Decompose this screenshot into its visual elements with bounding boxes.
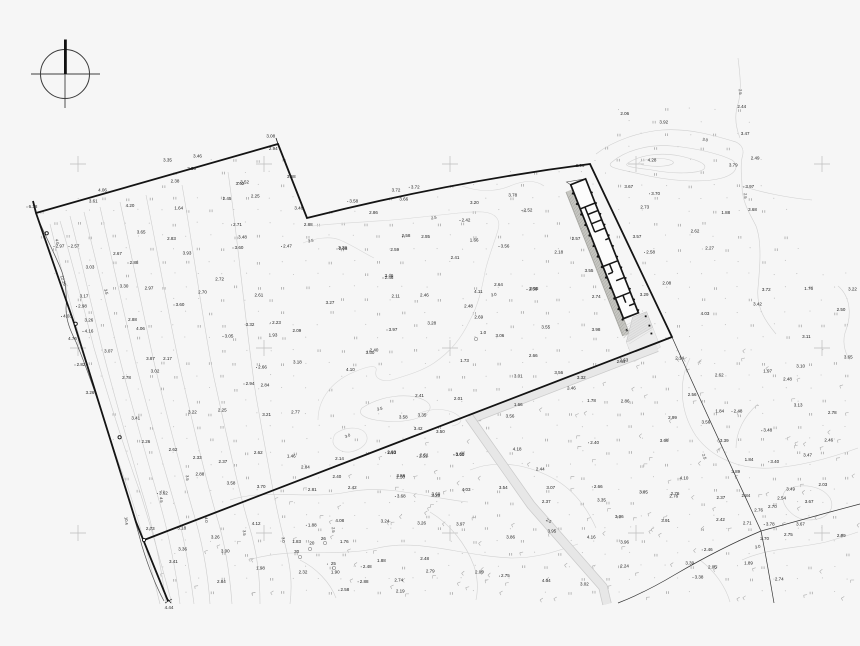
svg-text:3.01: 3.01: [514, 374, 523, 379]
svg-text:3.97: 3.97: [456, 522, 465, 527]
svg-text:2.66: 2.66: [258, 365, 267, 370]
svg-text:2.72: 2.72: [215, 277, 224, 282]
svg-text:2.40: 2.40: [333, 474, 342, 479]
svg-text:2.48: 2.48: [363, 564, 372, 569]
svg-text:2.84: 2.84: [301, 464, 310, 469]
svg-text:2.50: 2.50: [187, 166, 196, 171]
svg-text:2.18: 2.18: [554, 250, 563, 255]
svg-text:3.95: 3.95: [548, 529, 557, 534]
svg-text:3.78: 3.78: [508, 192, 517, 197]
svg-text:1.90: 1.90: [331, 570, 340, 575]
svg-text:3.22: 3.22: [848, 287, 857, 292]
svg-text:4.11: 4.11: [474, 289, 483, 294]
svg-text:2.32: 2.32: [299, 569, 308, 574]
svg-text:2.58: 2.58: [402, 233, 411, 238]
svg-text:2.73: 2.73: [146, 526, 155, 531]
svg-text:2.84: 2.84: [261, 383, 270, 388]
svg-text:2.33: 2.33: [193, 455, 202, 460]
svg-text:2.42: 2.42: [716, 517, 725, 522]
svg-text:2.62: 2.62: [254, 450, 263, 455]
svg-text:3.92: 3.92: [659, 120, 668, 125]
svg-text:2.99: 2.99: [668, 415, 677, 420]
svg-text:2.71: 2.71: [743, 520, 752, 525]
svg-text:3.30: 3.30: [120, 284, 129, 289]
svg-text:3.89: 3.89: [731, 469, 740, 474]
svg-text:2.01: 2.01: [454, 396, 463, 401]
svg-text:3.40: 3.40: [770, 459, 779, 464]
svg-text:1.78: 1.78: [587, 398, 596, 403]
svg-text:2.67: 2.67: [113, 251, 122, 256]
svg-text:2.58: 2.58: [341, 587, 350, 592]
svg-text:3.97: 3.97: [745, 184, 754, 189]
svg-text:3.47: 3.47: [741, 131, 750, 136]
svg-text:3.42: 3.42: [414, 426, 423, 431]
svg-text:3.32: 3.32: [577, 375, 586, 380]
svg-text:3.55: 3.55: [541, 325, 550, 330]
svg-text:2.77: 2.77: [291, 409, 300, 414]
svg-text:3.35: 3.35: [597, 497, 606, 502]
svg-text:2.23: 2.23: [339, 246, 348, 251]
svg-text:3.66: 3.66: [660, 438, 669, 443]
svg-text:2.09: 2.09: [293, 328, 302, 333]
svg-text:1.83: 1.83: [292, 539, 301, 544]
svg-text:3.87: 3.87: [146, 356, 155, 361]
svg-text:3.49: 3.49: [786, 487, 795, 492]
svg-text:2.86: 2.86: [369, 210, 378, 215]
svg-text:2.88: 2.88: [360, 579, 369, 584]
svg-text:3.58: 3.58: [349, 198, 358, 203]
svg-text:4.18: 4.18: [513, 447, 522, 452]
svg-text:2.37: 2.37: [542, 499, 551, 504]
svg-text:2.78: 2.78: [122, 375, 131, 380]
svg-text:2.59: 2.59: [390, 247, 399, 252]
svg-text:2.46: 2.46: [420, 293, 429, 298]
svg-text:3.05: 3.05: [225, 334, 234, 339]
svg-text:2.09: 2.09: [475, 570, 484, 575]
svg-text:1.89: 1.89: [744, 561, 753, 566]
svg-text:3.86: 3.86: [506, 535, 515, 540]
svg-text:4.03: 4.03: [462, 487, 471, 492]
svg-text:3.30: 3.30: [366, 350, 375, 355]
svg-text:3.11: 3.11: [802, 334, 811, 339]
svg-text:2.75: 2.75: [501, 573, 510, 578]
svg-text:3.70: 3.70: [651, 191, 660, 196]
svg-text:3.06: 3.06: [615, 514, 624, 519]
svg-text:3.35: 3.35: [418, 412, 427, 417]
svg-text:3.60: 3.60: [176, 302, 185, 307]
svg-text:1.76: 1.76: [804, 286, 813, 291]
svg-text:3.66: 3.66: [399, 197, 408, 202]
svg-text:4.10: 4.10: [680, 476, 689, 481]
svg-text:3.46: 3.46: [193, 154, 202, 159]
svg-text:2.52: 2.52: [524, 208, 533, 213]
svg-text:1.66: 1.66: [514, 402, 523, 407]
svg-text:3.32: 3.32: [246, 322, 255, 327]
svg-text:3.17: 3.17: [80, 294, 89, 299]
svg-text:3.07: 3.07: [104, 349, 113, 354]
svg-text:4.03: 4.03: [63, 314, 72, 319]
svg-text:3.39: 3.39: [685, 561, 694, 566]
svg-text:2.14: 2.14: [335, 456, 344, 461]
svg-text:2.70: 2.70: [768, 504, 777, 509]
svg-text:2.71: 2.71: [233, 222, 242, 227]
svg-text:3.68: 3.68: [748, 207, 757, 212]
svg-text:3.26: 3.26: [417, 521, 426, 526]
svg-text:3.98: 3.98: [592, 327, 601, 332]
svg-text:2.37: 2.37: [717, 495, 726, 500]
svg-text:2.48: 2.48: [734, 408, 743, 413]
svg-text:3.48: 3.48: [238, 235, 247, 240]
svg-text:2.46: 2.46: [824, 438, 833, 443]
svg-text:3.68: 3.68: [397, 494, 406, 499]
svg-text:1.73: 1.73: [460, 358, 469, 363]
svg-text:2.19: 2.19: [396, 589, 405, 594]
svg-text:3.61: 3.61: [89, 198, 98, 203]
svg-text:2.62: 2.62: [691, 229, 700, 234]
svg-text:3.72: 3.72: [762, 287, 771, 292]
svg-text:3.72: 3.72: [411, 184, 420, 189]
svg-text:2.50: 2.50: [837, 307, 846, 312]
svg-text:2.74: 2.74: [394, 578, 403, 583]
svg-text:2.76: 2.76: [671, 491, 680, 496]
svg-text:3.65: 3.65: [844, 355, 853, 360]
svg-text:2.44: 2.44: [737, 104, 746, 109]
svg-text:4.20: 4.20: [126, 203, 135, 208]
svg-text:6.38: 6.38: [29, 204, 38, 209]
svg-text:3.21: 3.21: [262, 412, 271, 417]
svg-text:3.52: 3.52: [240, 179, 249, 184]
svg-text:1.66: 1.66: [470, 238, 479, 243]
svg-text:2.27: 2.27: [705, 246, 714, 251]
svg-text:3.26: 3.26: [86, 390, 95, 395]
svg-text:2.56: 2.56: [397, 473, 406, 478]
svg-text:4.16: 4.16: [587, 535, 596, 540]
svg-text:3.55: 3.55: [585, 268, 594, 273]
svg-text:2.84: 2.84: [217, 579, 226, 584]
svg-text:3.68: 3.68: [287, 174, 296, 179]
svg-text:2.37: 2.37: [219, 459, 228, 464]
svg-text:2.86: 2.86: [621, 399, 630, 404]
svg-text:26: 26: [321, 536, 327, 541]
svg-text:3.72: 3.72: [392, 188, 401, 193]
svg-text:2.41: 2.41: [451, 255, 460, 260]
svg-text:4.06: 4.06: [136, 326, 145, 331]
svg-text:2.57: 2.57: [71, 244, 80, 249]
svg-text:2.08: 2.08: [662, 280, 671, 285]
svg-text:2.88: 2.88: [128, 317, 137, 322]
svg-text:4.16: 4.16: [85, 329, 94, 334]
svg-text:1.93: 1.93: [269, 333, 278, 338]
svg-text:2.98: 2.98: [78, 304, 87, 309]
svg-text:4.06: 4.06: [98, 188, 107, 193]
svg-text:3.46: 3.46: [294, 206, 303, 211]
svg-text:3.56: 3.56: [506, 413, 515, 418]
svg-text:3.58: 3.58: [399, 414, 408, 419]
svg-text:2.45: 2.45: [223, 196, 232, 201]
svg-text:1.88: 1.88: [377, 558, 386, 563]
svg-text:2.66: 2.66: [594, 484, 603, 489]
svg-text:2.73: 2.73: [640, 204, 649, 209]
svg-text:2.24: 2.24: [620, 564, 629, 569]
svg-text:3.24: 3.24: [381, 519, 390, 524]
svg-text:3.18: 3.18: [293, 360, 302, 365]
svg-text:3.39: 3.39: [720, 438, 729, 443]
svg-text:3.56: 3.56: [501, 244, 510, 249]
svg-text:2.57: 2.57: [572, 236, 581, 241]
svg-text:4.03: 4.03: [701, 311, 710, 316]
svg-text:3.42: 3.42: [753, 302, 762, 307]
svg-text:3.54: 3.54: [499, 485, 508, 490]
svg-text:3.50: 3.50: [436, 429, 445, 434]
svg-text:2.51: 2.51: [420, 452, 429, 457]
svg-text:3.10: 3.10: [796, 364, 805, 369]
svg-text:3.05: 3.05: [639, 490, 648, 495]
svg-text:1.98: 1.98: [256, 566, 265, 571]
svg-text:3.65: 3.65: [137, 230, 146, 235]
svg-text:3.47: 3.47: [803, 453, 812, 458]
svg-text:2.58: 2.58: [530, 286, 539, 291]
svg-text:3.35: 3.35: [163, 158, 172, 163]
svg-text:2.44: 2.44: [536, 466, 545, 471]
svg-text:4.76: 4.76: [68, 336, 77, 341]
svg-text:20: 20: [309, 540, 315, 545]
svg-text:4.08: 4.08: [335, 518, 344, 523]
svg-text:2.97: 2.97: [145, 285, 154, 290]
svg-text:10.4: 10.4: [124, 517, 130, 526]
svg-text:3.20: 3.20: [470, 200, 479, 205]
svg-text:2.58: 2.58: [646, 249, 655, 254]
svg-text:2.46: 2.46: [704, 547, 713, 552]
svg-text:3.00: 3.00: [221, 548, 230, 553]
svg-text:2.88: 2.88: [304, 222, 313, 227]
svg-text:3.60: 3.60: [235, 245, 244, 250]
svg-text:2.48: 2.48: [783, 376, 792, 381]
svg-text:2.94: 2.94: [246, 381, 255, 386]
svg-text:3.26: 3.26: [85, 318, 94, 323]
svg-text:2.76: 2.76: [754, 508, 763, 513]
svg-text:3.97: 3.97: [389, 327, 398, 332]
svg-text:2.14: 2.14: [675, 355, 684, 360]
svg-text:2.69: 2.69: [474, 315, 483, 320]
svg-text:4.12: 4.12: [252, 521, 261, 526]
svg-text:2.83: 2.83: [167, 236, 176, 241]
svg-text:2.88: 2.88: [130, 260, 139, 265]
svg-text:2.84: 2.84: [742, 493, 751, 498]
svg-text:1.64: 1.64: [174, 206, 183, 211]
svg-text:2.62: 2.62: [715, 373, 724, 378]
svg-text:1.84: 1.84: [715, 409, 724, 414]
svg-text:3.91: 3.91: [661, 518, 670, 523]
svg-text:2.75: 2.75: [784, 532, 793, 537]
svg-text:2.25: 2.25: [251, 193, 260, 198]
svg-text:2.81: 2.81: [308, 487, 317, 492]
svg-text:2.42: 2.42: [348, 485, 357, 490]
svg-text:3.96: 3.96: [620, 540, 629, 545]
svg-text:4.28: 4.28: [648, 158, 657, 163]
svg-text:2.26: 2.26: [142, 439, 151, 444]
svg-text:2.25: 2.25: [218, 408, 227, 413]
svg-text:25: 25: [331, 561, 337, 566]
svg-text:30: 30: [294, 549, 300, 554]
svg-text:2.82: 2.82: [77, 362, 86, 367]
svg-text:2.66: 2.66: [529, 353, 538, 358]
svg-text:3.79: 3.79: [729, 162, 738, 167]
svg-text:4.44: 4.44: [165, 605, 174, 610]
svg-text:2.70: 2.70: [760, 536, 769, 541]
svg-text:2.47: 2.47: [283, 244, 292, 249]
svg-text:2.62: 2.62: [169, 447, 178, 452]
svg-text:2.49: 2.49: [751, 156, 760, 161]
svg-text:2.96: 2.96: [576, 163, 585, 168]
svg-text:2.63: 2.63: [620, 358, 629, 363]
svg-text:2.88: 2.88: [196, 471, 205, 476]
svg-text:3.20: 3.20: [431, 493, 440, 498]
svg-text:3.70: 3.70: [257, 484, 266, 489]
svg-text:3.41: 3.41: [131, 416, 140, 421]
svg-text:1.46: 1.46: [287, 454, 296, 459]
svg-text:1.97: 1.97: [763, 368, 772, 373]
svg-text:3.27: 3.27: [326, 300, 335, 305]
svg-text:2.64: 2.64: [494, 282, 503, 287]
svg-text:2.17: 2.17: [163, 356, 172, 361]
svg-text:3.03: 3.03: [86, 265, 95, 270]
svg-text:2.40: 2.40: [590, 440, 599, 445]
svg-text:3.56: 3.56: [554, 370, 563, 375]
svg-text:1.84: 1.84: [745, 457, 754, 462]
svg-text:3.18: 3.18: [177, 525, 186, 530]
svg-text:2.54: 2.54: [777, 496, 786, 501]
svg-text:3.06: 3.06: [496, 333, 505, 338]
svg-text:3.26: 3.26: [211, 535, 220, 540]
svg-text:2.74: 2.74: [592, 294, 601, 299]
svg-text:2.38: 2.38: [171, 179, 180, 184]
svg-text:1.76: 1.76: [340, 539, 349, 544]
svg-text:3.38: 3.38: [695, 574, 704, 579]
svg-text:4.04: 4.04: [542, 578, 551, 583]
svg-text:3.28: 3.28: [427, 321, 436, 326]
svg-text:2.41: 2.41: [415, 393, 424, 398]
svg-text:3.78: 3.78: [766, 522, 775, 527]
svg-text:1.88: 1.88: [308, 522, 317, 527]
svg-text:2.94: 2.94: [269, 146, 278, 151]
svg-text:3.60: 3.60: [456, 451, 465, 456]
svg-text:3.67: 3.67: [624, 184, 633, 189]
svg-text:3.67: 3.67: [805, 499, 814, 504]
svg-text:3.62: 3.62: [159, 491, 168, 496]
svg-text:4.10: 4.10: [346, 367, 355, 372]
svg-text:2.48: 2.48: [420, 556, 429, 561]
svg-text:2.23: 2.23: [272, 320, 281, 325]
svg-text:3.07: 3.07: [546, 485, 555, 490]
svg-text:2.48: 2.48: [464, 304, 473, 309]
svg-text:2.56: 2.56: [688, 392, 697, 397]
svg-text:3.22: 3.22: [188, 410, 197, 415]
svg-text:2.11: 2.11: [391, 294, 400, 299]
svg-text:3.08: 3.08: [266, 133, 275, 138]
svg-text:3.93: 3.93: [183, 251, 192, 256]
svg-text:3.29: 3.29: [640, 292, 649, 297]
svg-text:2.78: 2.78: [828, 410, 837, 415]
svg-text:3.57: 3.57: [633, 234, 642, 239]
svg-text:2.61: 2.61: [255, 293, 264, 298]
svg-text:2.06: 2.06: [620, 111, 629, 116]
svg-text:3.36: 3.36: [178, 547, 187, 552]
svg-text:2.74: 2.74: [775, 576, 784, 581]
svg-text:3.02: 3.02: [580, 582, 589, 587]
svg-text:2.93: 2.93: [387, 450, 396, 455]
svg-text:1.0: 1.0: [480, 330, 487, 335]
svg-text:3.58: 3.58: [227, 481, 236, 486]
svg-text:3.56: 3.56: [702, 419, 711, 424]
svg-text:2.03: 2.03: [819, 482, 828, 487]
svg-text:3.02: 3.02: [151, 369, 160, 374]
svg-text:2.05: 2.05: [708, 565, 717, 570]
svg-text:2.79: 2.79: [426, 569, 435, 574]
svg-text:2.42: 2.42: [462, 218, 471, 223]
svg-text:3.41: 3.41: [169, 559, 178, 564]
svg-text:3.48: 3.48: [763, 428, 772, 433]
svg-text:2.70: 2.70: [198, 290, 207, 295]
svg-text:3.46: 3.46: [385, 273, 394, 278]
svg-text:2.99: 2.99: [837, 533, 846, 538]
svg-text:2.55: 2.55: [421, 234, 430, 239]
svg-text:3.67: 3.67: [796, 522, 805, 527]
svg-text:1.88: 1.88: [721, 210, 730, 215]
svg-text:3.13: 3.13: [794, 403, 803, 408]
svg-text:2.46: 2.46: [567, 385, 576, 390]
